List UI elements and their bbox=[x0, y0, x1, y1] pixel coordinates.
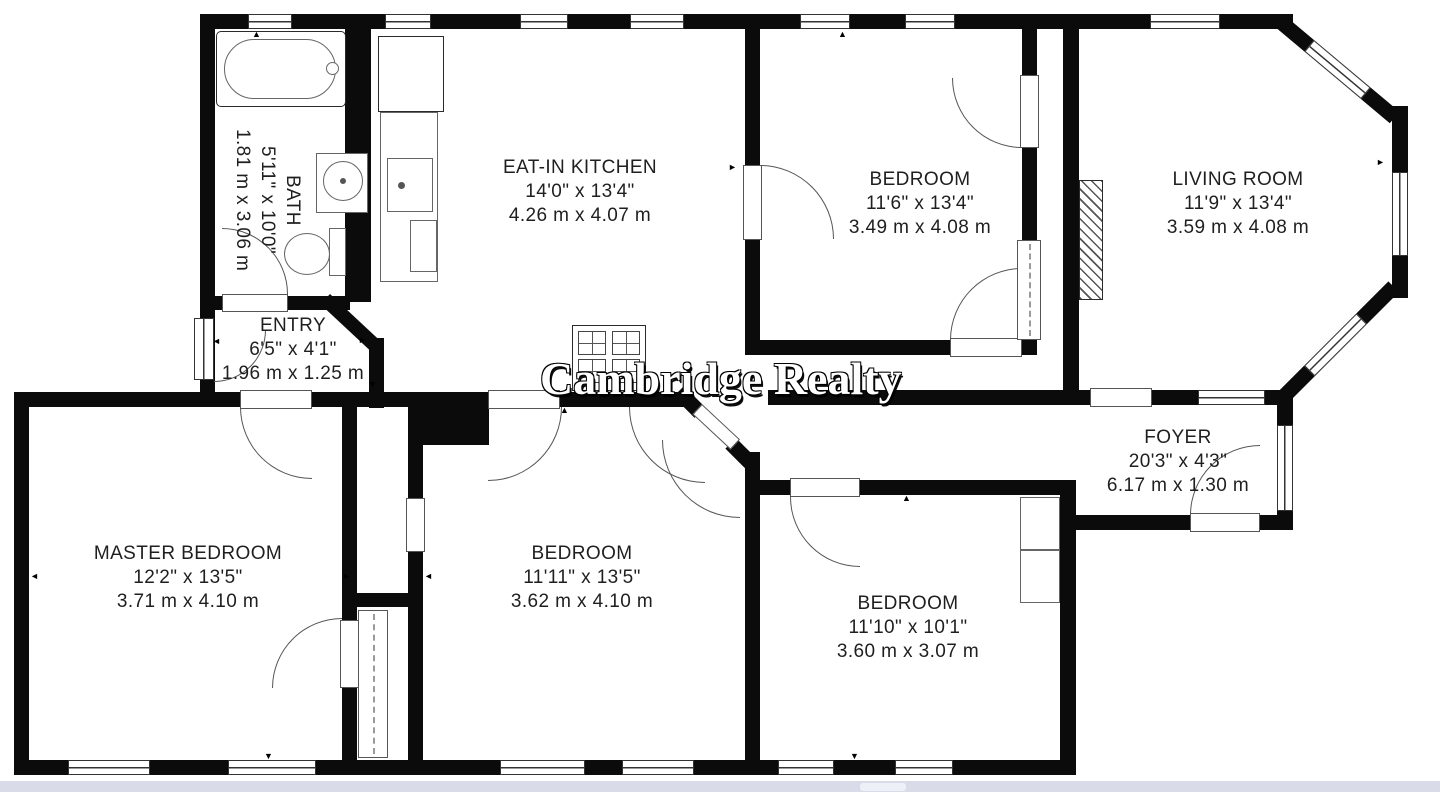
bottom-scrollbar-track bbox=[0, 781, 1440, 792]
room-name: BEDROOM bbox=[778, 592, 1038, 616]
door-swing-arc bbox=[488, 407, 562, 481]
room-dim-metric: 3.62 m x 4.10 m bbox=[452, 590, 712, 614]
sink-drain-icon bbox=[398, 182, 405, 189]
room-dim-imperial: 5'11" x 10'0" bbox=[255, 105, 280, 295]
room-label-bedroom-right: BEDROOM 11'10" x 10'1" 3.60 m x 3.07 m bbox=[778, 592, 1038, 664]
room-label-master-bedroom: MASTER BEDROOM 12'2" x 13'5" 3.71 m x 4.… bbox=[58, 542, 318, 614]
room-dim-metric: 3.60 m x 3.07 m bbox=[778, 640, 1038, 664]
window bbox=[248, 14, 292, 29]
window bbox=[1392, 172, 1408, 256]
direction-arrow-icon: ▼ bbox=[850, 752, 859, 761]
room-dim-imperial: 11'6" x 13'4" bbox=[790, 192, 1050, 216]
window bbox=[1150, 14, 1220, 29]
room-label-bedroom-top: BEDROOM 11'6" x 13'4" 3.49 m x 4.08 m bbox=[790, 168, 1050, 240]
toilet-tank bbox=[329, 228, 346, 276]
sliding-door-track bbox=[373, 614, 375, 754]
wall bbox=[1022, 14, 1037, 78]
wall bbox=[1063, 14, 1079, 405]
window bbox=[1304, 40, 1370, 99]
watermark-logo: Cambridge Realty bbox=[540, 352, 902, 405]
room-dim-metric: 3.49 m x 4.08 m bbox=[790, 216, 1050, 240]
direction-arrow-icon: ► bbox=[1376, 158, 1385, 167]
door-swing-arc bbox=[240, 407, 312, 479]
window bbox=[500, 760, 585, 775]
room-label-foyer: FOYER 20'3" x 4'3" 6.17 m x 1.30 m bbox=[1048, 426, 1308, 498]
room-dim-metric: 6.17 m x 1.30 m bbox=[1048, 474, 1308, 498]
door-opening bbox=[950, 338, 1022, 357]
room-dim-metric: 4.26 m x 4.07 m bbox=[420, 204, 740, 228]
room-name: BEDROOM bbox=[452, 542, 712, 566]
refrigerator bbox=[378, 36, 444, 112]
floor-plan-canvas: BATH 5'11" x 10'0" 1.81 m x 3.06 m EAT-I… bbox=[0, 0, 1440, 792]
window bbox=[800, 14, 850, 29]
bathtub-faucet-icon bbox=[326, 62, 339, 75]
direction-arrow-icon: ► bbox=[342, 572, 351, 581]
direction-arrow-icon: ▲ bbox=[902, 494, 911, 503]
wall bbox=[342, 407, 357, 760]
wall bbox=[1060, 480, 1076, 760]
room-label-living-room: LIVING ROOM 11'9" x 13'4" 3.59 m x 4.08 … bbox=[1108, 168, 1368, 240]
door-opening bbox=[1090, 388, 1152, 407]
door-opening bbox=[340, 620, 359, 688]
wall bbox=[408, 407, 423, 760]
sliding-closet-door bbox=[358, 610, 388, 758]
door-swing-arc bbox=[662, 440, 740, 518]
chimney-mass bbox=[423, 407, 489, 445]
sliding-door-track bbox=[1029, 244, 1031, 336]
room-dim-metric: 3.59 m x 4.08 m bbox=[1108, 216, 1368, 240]
direction-arrow-icon: ▲ bbox=[560, 406, 569, 415]
room-dim-metric: 1.96 m x 1.25 m bbox=[193, 362, 393, 386]
room-name: LIVING ROOM bbox=[1108, 168, 1368, 192]
closet-shelf bbox=[1020, 497, 1060, 550]
room-name: MASTER BEDROOM bbox=[58, 542, 318, 566]
window bbox=[68, 760, 150, 775]
room-dim-imperial: 14'0" x 13'4" bbox=[420, 180, 740, 204]
room-dim-imperial: 12'2" x 13'5" bbox=[58, 566, 318, 590]
room-name: FOYER bbox=[1048, 426, 1308, 450]
window bbox=[1304, 313, 1367, 376]
window bbox=[630, 14, 684, 29]
door-opening bbox=[1190, 513, 1260, 532]
door-opening bbox=[222, 294, 288, 312]
room-label-kitchen: EAT-IN KITCHEN 14'0" x 13'4" 4.26 m x 4.… bbox=[420, 156, 740, 228]
fireplace bbox=[1079, 180, 1103, 300]
window bbox=[385, 14, 431, 29]
door-swing-arc bbox=[950, 268, 1022, 340]
room-dim-metric: 3.71 m x 4.10 m bbox=[58, 590, 318, 614]
door-swing-arc bbox=[790, 497, 860, 567]
window bbox=[895, 760, 953, 775]
wall bbox=[1076, 515, 1293, 530]
window bbox=[778, 760, 834, 775]
direction-arrow-icon: ▲ bbox=[838, 30, 847, 39]
room-dim-imperial: 6'5" x 4'1" bbox=[193, 338, 393, 362]
window bbox=[520, 14, 568, 29]
direction-arrow-icon: ▲ bbox=[252, 30, 261, 39]
door-opening bbox=[406, 498, 425, 552]
bottom-scrollbar-thumb[interactable] bbox=[860, 783, 906, 791]
door-swing-arc bbox=[272, 618, 342, 688]
window bbox=[1198, 390, 1265, 405]
direction-arrow-icon: ◄ bbox=[424, 572, 433, 581]
room-label-bedroom-mid: BEDROOM 11'11" x 13'5" 3.62 m x 4.10 m bbox=[452, 542, 712, 614]
room-dim-imperial: 11'11" x 13'5" bbox=[452, 566, 712, 590]
room-label-entry: ENTRY 6'5" x 4'1" 1.96 m x 1.25 m bbox=[193, 314, 393, 386]
bathtub-basin bbox=[224, 39, 336, 99]
direction-arrow-icon: ◄ bbox=[30, 572, 39, 581]
room-name: BEDROOM bbox=[790, 168, 1050, 192]
wall bbox=[14, 392, 29, 775]
room-name: BATH bbox=[280, 105, 305, 295]
wall bbox=[745, 452, 760, 760]
window bbox=[622, 760, 694, 775]
sink-drain-icon bbox=[340, 178, 346, 184]
door-swing-arc bbox=[952, 78, 1022, 148]
room-name: ENTRY bbox=[193, 314, 393, 338]
sliding-closet-door bbox=[1017, 240, 1041, 340]
door-opening bbox=[1020, 75, 1039, 148]
window bbox=[905, 14, 955, 29]
window bbox=[228, 760, 316, 775]
room-dim-metric: 1.81 m x 3.06 m bbox=[230, 105, 255, 295]
room-name: EAT-IN KITCHEN bbox=[420, 156, 740, 180]
room-label-bath: BATH 5'11" x 10'0" 1.81 m x 3.06 m bbox=[229, 105, 305, 295]
door-opening bbox=[790, 478, 860, 497]
room-dim-imperial: 20'3" x 4'3" bbox=[1048, 450, 1308, 474]
room-dim-imperial: 11'10" x 10'1" bbox=[778, 616, 1038, 640]
room-dim-imperial: 11'9" x 13'4" bbox=[1108, 192, 1368, 216]
direction-arrow-icon: ▼ bbox=[264, 752, 273, 761]
